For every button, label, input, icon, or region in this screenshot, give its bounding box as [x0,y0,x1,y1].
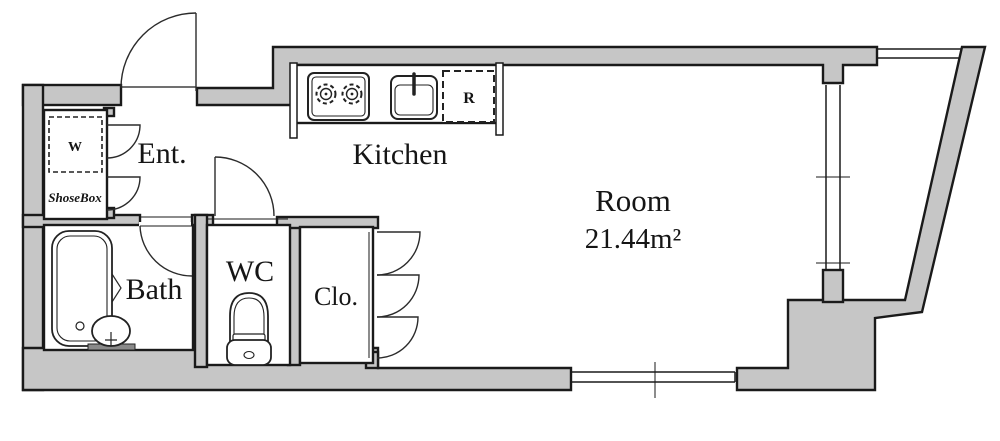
wall-window-stub [823,270,843,302]
closet-fan-1 [377,232,420,275]
entrance-door-arc [121,13,196,88]
kitchen-label: Kitchen [353,138,448,171]
closet-fan-3 [377,317,418,358]
closet-fan-2 [377,275,419,317]
shoebox-label: ShoseBox [48,190,102,205]
toilet [227,293,271,365]
kitchen-fin-left [290,63,297,138]
toilet-tank [227,340,271,365]
shoebox-fan-2 [107,177,140,210]
room-label: Room [595,183,671,218]
balcony-rail [877,49,962,58]
room-door-arc [215,157,274,216]
refrigerator-symbol: R [463,90,475,107]
kitchen-fin-right [496,63,503,135]
shoebox-folding-doors [107,125,140,210]
stove [308,73,369,120]
bath-label: Bath [126,273,183,306]
closet-label: Clo. [314,282,358,311]
entrance-label: Ent. [137,137,186,170]
kitchen-sink [391,74,437,119]
floor-plan: Ent. Kitchen Room 21.44m² Bath WC Clo. S… [0,0,1000,441]
washer-symbol: W [68,140,82,155]
wall-bath-wc [195,215,207,367]
wc-label: WC [226,255,274,288]
closet-folding-doors [377,232,420,358]
room-area-label: 21.44m² [585,223,682,255]
shoebox-fan-1 [107,125,140,158]
wall-left [23,85,43,390]
window-right-ticks [816,177,850,263]
wall-right-mass [737,47,985,390]
window-bottom [571,372,735,382]
bath-door-opening [139,222,191,228]
